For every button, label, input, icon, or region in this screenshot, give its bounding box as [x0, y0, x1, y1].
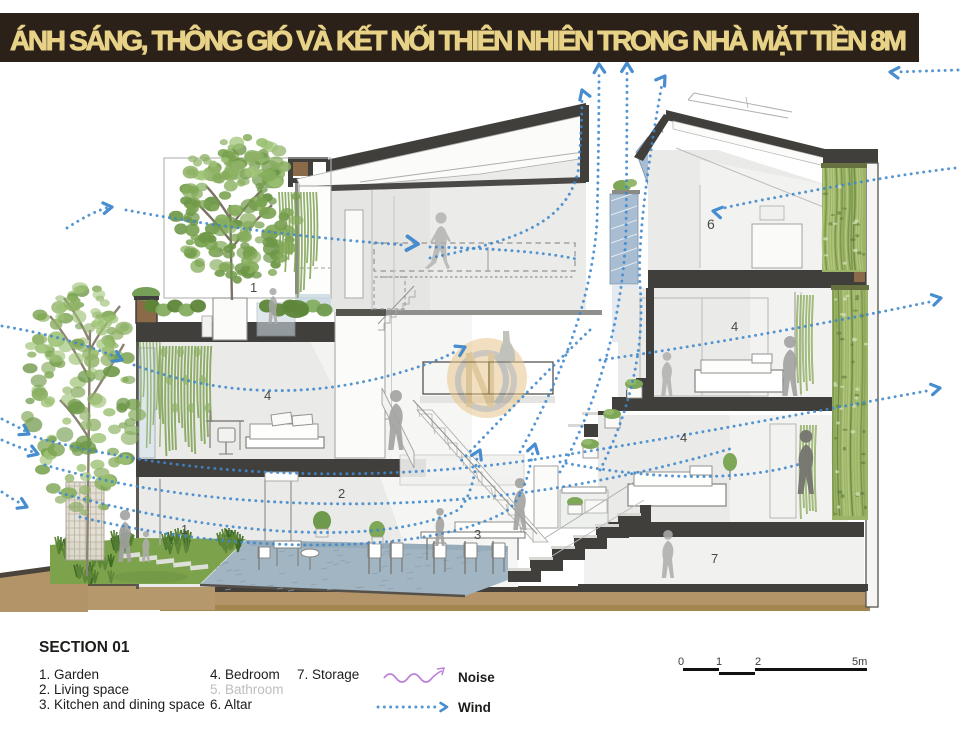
svg-text:1. Garden: 1. Garden [39, 667, 99, 682]
svg-text:4: 4 [680, 430, 687, 445]
svg-text:2. Living space: 2. Living space [39, 682, 129, 697]
svg-text:1: 1 [250, 280, 257, 295]
svg-text:1: 1 [716, 656, 722, 668]
svg-text:2: 2 [338, 486, 345, 501]
svg-text:5. Bathroom: 5. Bathroom [210, 682, 284, 697]
svg-text:7. Storage: 7. Storage [297, 667, 359, 682]
svg-text:3. Kitchen and dining space: 3. Kitchen and dining space [39, 697, 205, 712]
svg-text:7: 7 [711, 551, 718, 566]
svg-text:4. Bedroom: 4. Bedroom [210, 667, 280, 682]
svg-text:1: 1 [181, 522, 188, 537]
svg-text:ÁNH SÁNG, THÔNG GIÓ VÀ KẾT NỐI: ÁNH SÁNG, THÔNG GIÓ VÀ KẾT NỐI THIÊN NHI… [10, 24, 907, 56]
svg-text:Wind: Wind [458, 700, 491, 715]
svg-text:6: 6 [707, 216, 715, 232]
svg-text:Noise: Noise [458, 670, 495, 685]
svg-text:6. Altar: 6. Altar [210, 697, 253, 712]
svg-text:2: 2 [755, 656, 761, 668]
svg-text:4: 4 [264, 388, 271, 403]
svg-text:0: 0 [678, 656, 684, 668]
svg-text:3: 3 [474, 527, 481, 542]
svg-text:SECTION 01: SECTION 01 [39, 639, 130, 656]
svg-text:4: 4 [731, 319, 738, 334]
svg-text:5m: 5m [852, 656, 867, 668]
